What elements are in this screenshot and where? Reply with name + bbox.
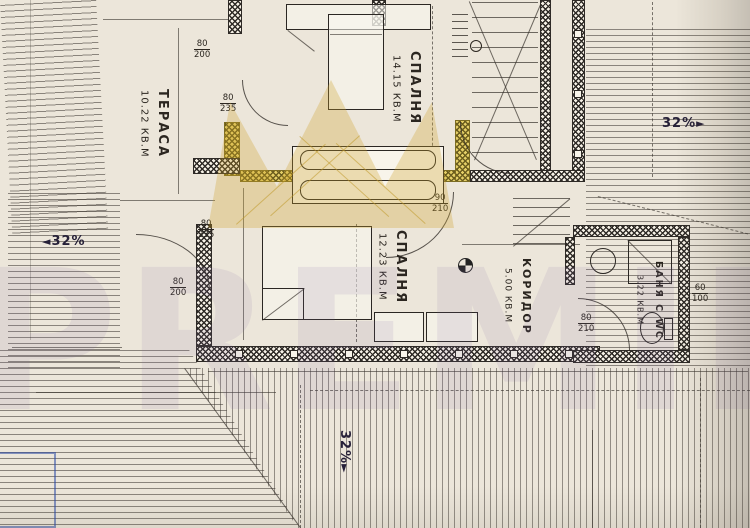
roof-slope-label: 32%► <box>662 116 706 131</box>
floorplan-canvas: ТЕРАСА 10.22 КВ.М СПАЛНЯ 14.15 КВ.М СПАЛ… <box>0 0 750 528</box>
slope-arrow-icon: ► <box>338 464 351 473</box>
pen-annotation-mark <box>0 452 56 528</box>
slope-layer: 32%►◄32%32%► <box>0 0 750 528</box>
roof-slope-label: ◄32% <box>42 234 86 249</box>
roof-slope-label: 32%► <box>337 430 352 474</box>
slope-arrow-icon: ► <box>696 117 705 130</box>
